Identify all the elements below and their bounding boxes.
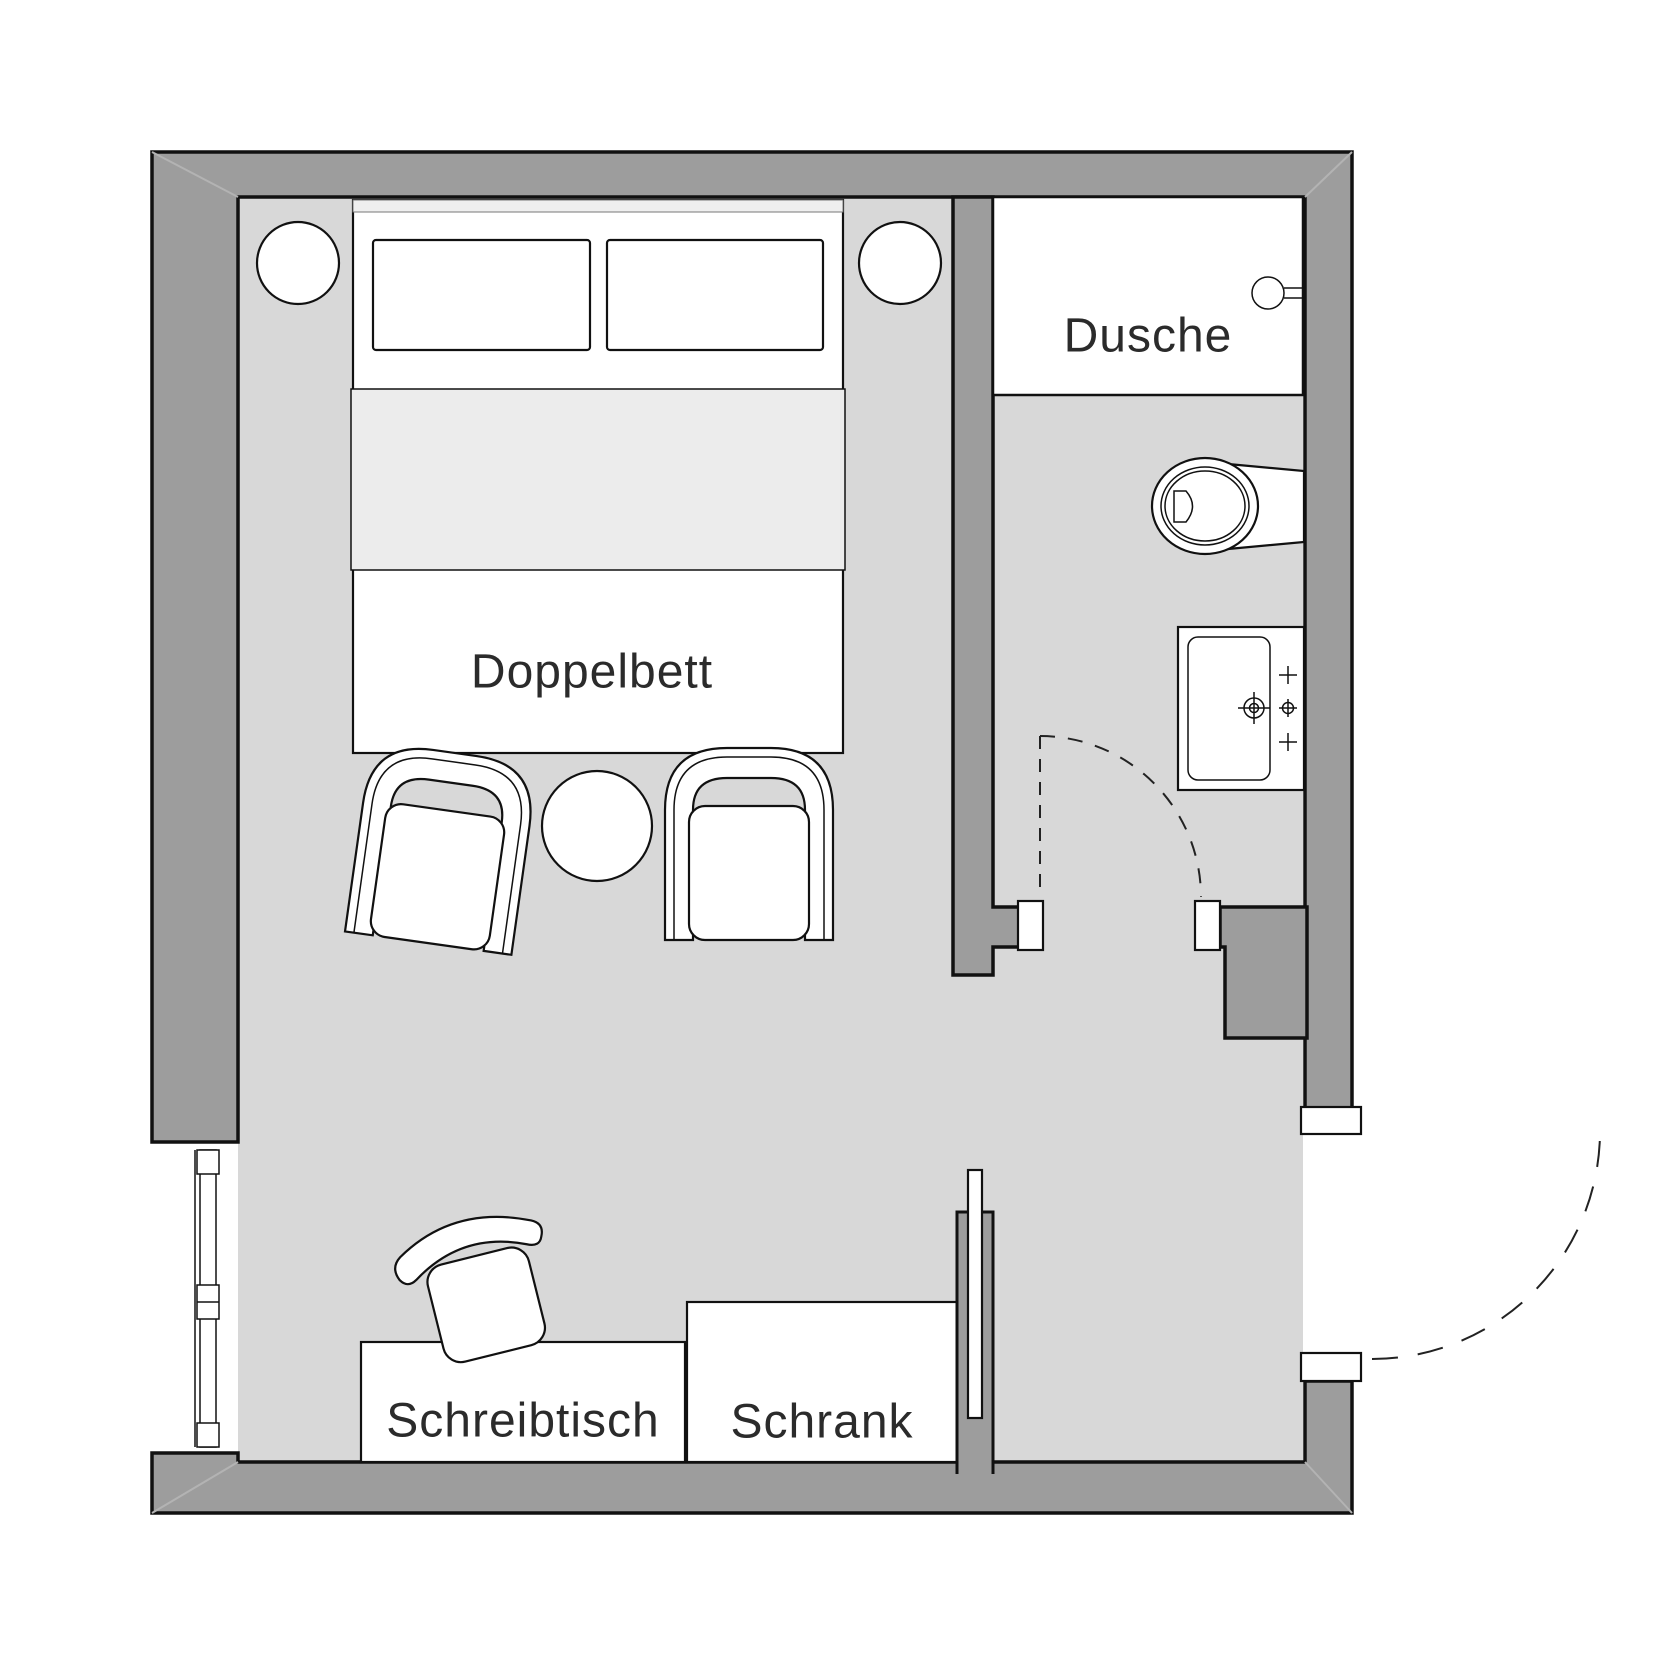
entry-door-swing-arc	[1372, 1131, 1600, 1359]
side-table	[542, 771, 652, 881]
wall-bathroom-right-pillar	[1220, 907, 1307, 1038]
pillow-left	[373, 240, 590, 350]
armchair-right	[665, 748, 833, 940]
entry-door-jamb-bottom	[1301, 1353, 1361, 1381]
nightstand-left	[257, 222, 339, 304]
bed-blanket	[351, 389, 845, 570]
desk-label: Schreibtisch	[386, 1394, 659, 1449]
washbasin	[1178, 627, 1304, 790]
window	[152, 1144, 238, 1451]
bathroom-door-jamb-right	[1195, 901, 1220, 950]
bed-headboard-rail	[353, 200, 843, 212]
armchair-left	[345, 741, 538, 955]
bed-label: Doppelbett	[471, 645, 713, 700]
shower-label: Dusche	[1064, 309, 1233, 364]
toilet	[1152, 458, 1304, 554]
floorplan-canvas: Doppelbett Dusche Schreibtisch Schrank	[0, 0, 1667, 1667]
pillow-right	[607, 240, 823, 350]
bathroom-door-jamb-left	[1018, 901, 1043, 950]
nightstand-right	[859, 222, 941, 304]
entry-door-jamb-top	[1301, 1107, 1361, 1134]
door-leaf-open	[968, 1170, 982, 1418]
wardrobe-label: Schrank	[730, 1395, 913, 1450]
